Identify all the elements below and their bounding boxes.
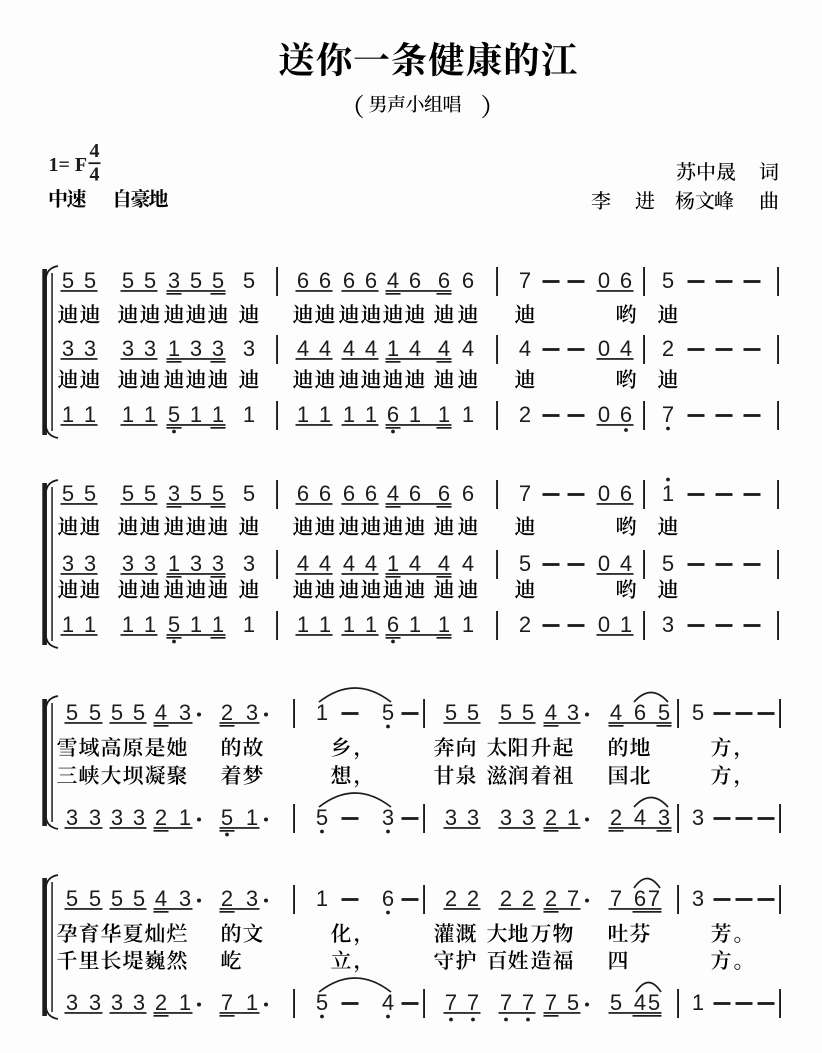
svg-text:1= F: 1= F [49,154,88,176]
svg-text:55554323155555434655: 55554323155555434655 [66,700,704,725]
svg-text:55554323162222277673: 55554323162222277673 [66,886,704,911]
svg-text:33332151533333212433: 33332151533333212433 [66,805,704,830]
svg-text:33332171547777755451: 33332171547777755451 [66,990,704,1015]
